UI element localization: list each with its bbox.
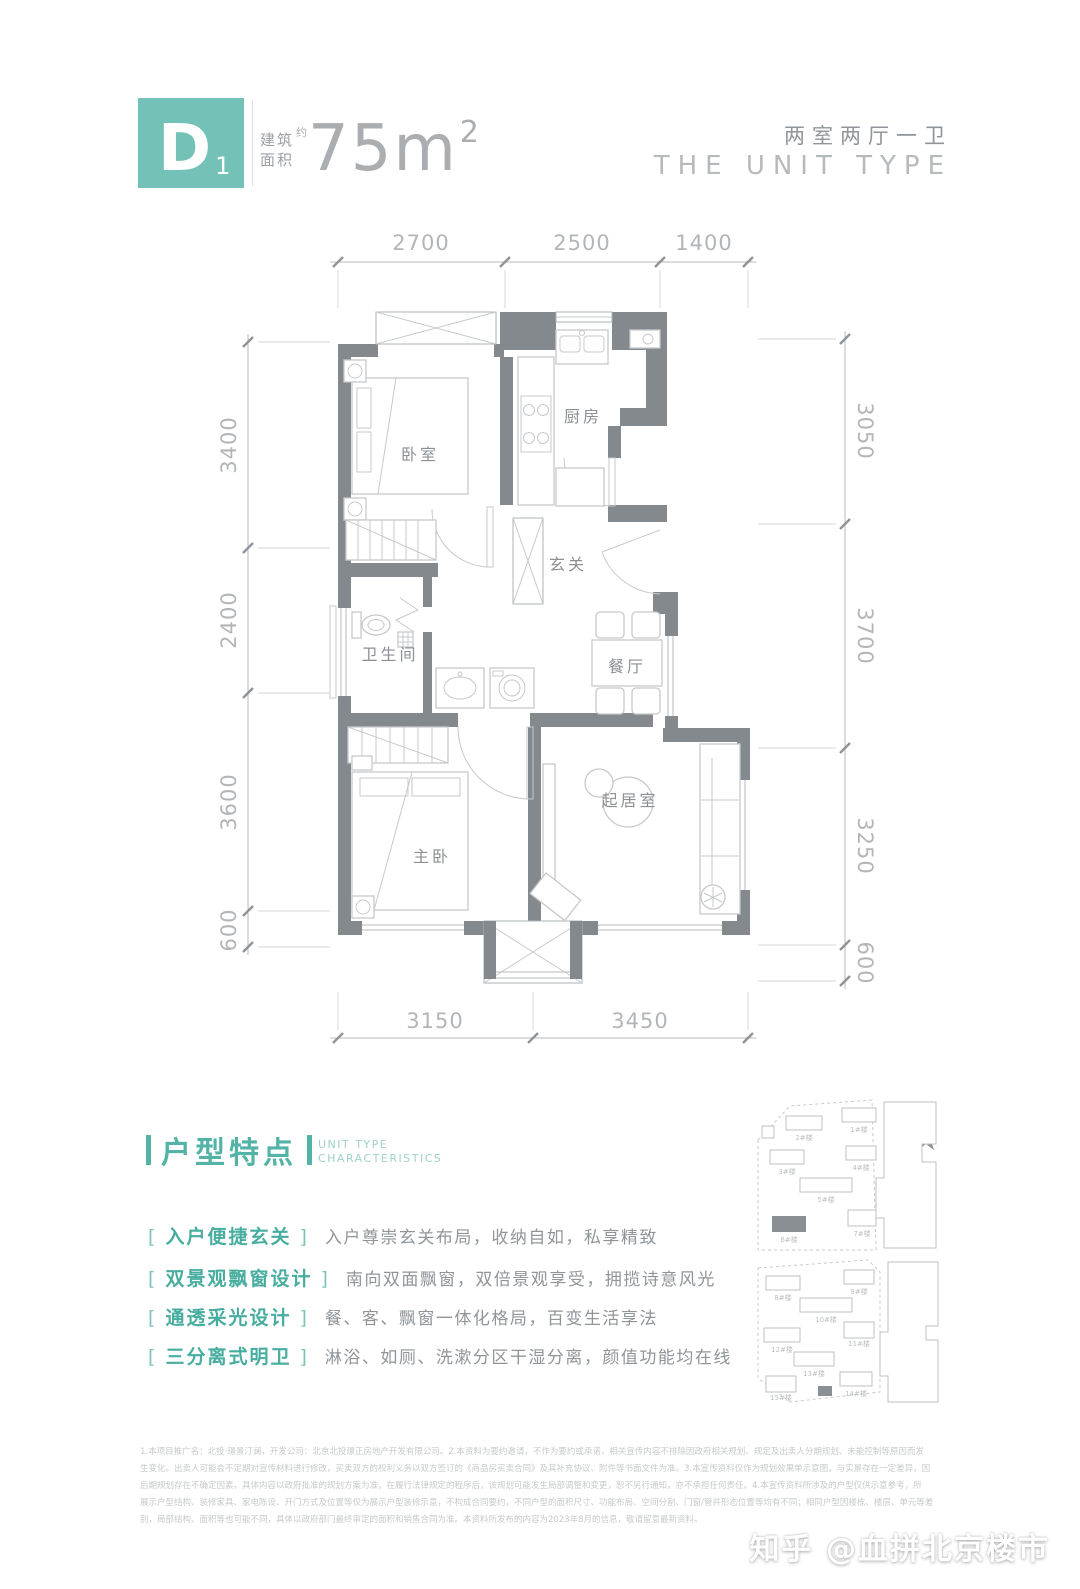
room-label-master: 主卧 (413, 847, 451, 866)
room-label-dining: 餐厅 (608, 657, 646, 676)
feature-tag: 三分离式明卫 (148, 1342, 309, 1369)
site-bldg-6: 6#楼 (780, 1235, 797, 1244)
dim-right-3: 3250 (853, 817, 877, 874)
feature-item-4: 三分离式明卫 淋浴、如厕、洗漱分区干湿分离，颜值功能均在线 (148, 1342, 732, 1369)
site-bldg-14: 14#楼 (845, 1389, 867, 1398)
site-bldg-9: 9#楼 (850, 1287, 867, 1296)
dim-left-2: 2400 (217, 591, 241, 648)
site-bldg-12: 12#楼 (771, 1345, 793, 1354)
floorplan-page: D 1 建筑 面积 约 75m2 两室两厅一卫 THE UNIT TYPE (0, 0, 1080, 1589)
room-label-foyer: 玄关 (549, 555, 587, 574)
dimension-bottom: 3150 3450 (330, 992, 756, 1043)
dim-top-3: 1400 (675, 231, 732, 255)
site-bldg-3: 3#楼 (778, 1167, 795, 1176)
dim-left-4: 600 (217, 908, 241, 951)
disclaimer-text: 1.本项目推广名：北投·璟景汀澜，开发公司：北京北投璟正房地产开发有限公司。2.… (140, 1444, 956, 1529)
dim-left-3: 3600 (217, 773, 241, 830)
site-bldg-8: 8#楼 (774, 1293, 791, 1302)
site-bldg-13: 13#楼 (803, 1369, 825, 1378)
site-bldg-11: 11#楼 (848, 1339, 870, 1348)
feature-item-3: 通透采光设计 餐、客、飘窗一体化格局，百变生活享法 (148, 1303, 658, 1330)
dim-bottom-2: 3450 (611, 1009, 668, 1033)
dim-top-1: 2700 (392, 231, 449, 255)
site-bldg-1: 1#楼 (850, 1125, 867, 1134)
feature-desc: 餐、客、飘窗一体化格局，百变生活享法 (325, 1304, 658, 1329)
dim-right-4: 600 (853, 941, 877, 984)
site-plan: N 1#楼 2#楼 3#楼 4#楼 5#楼 6#楼 7#楼 (758, 1100, 938, 1402)
disclaimer-line: 生变化。出卖人可能会不定期对宣传材料进行修改，买卖双方的权利义务以双方签订的《商… (140, 1461, 956, 1478)
room-label-bath: 卫生间 (361, 645, 418, 664)
disclaimer-line: 1.本项目推广名：北投·璟景汀澜，开发公司：北京北投璟正房地产开发有限公司。2.… (140, 1444, 956, 1461)
feature-desc: 淋浴、如厕、洗漱分区干湿分离，颜值功能均在线 (325, 1343, 732, 1368)
dim-right-2: 3700 (853, 607, 877, 664)
room-label-kitchen: 厨房 (564, 407, 602, 426)
dimension-left: 3400 2400 3600 600 (217, 334, 330, 955)
watermark: 知乎 @血拼北京楼市 (750, 1524, 1050, 1568)
room-label-bedroom: 卧室 (401, 445, 439, 464)
dimension-right: 3050 3700 3250 600 (758, 331, 877, 989)
dimension-top: 2700 2500 1400 (330, 231, 756, 308)
title-bar-right (307, 1135, 312, 1165)
features-header: 户型特点 (146, 1128, 312, 1172)
dim-right-1: 3050 (853, 402, 877, 459)
duct-shaft (513, 518, 543, 604)
dim-top-2: 2500 (553, 231, 610, 255)
disclaimer-line: 后期规划存在不确定因素，具体内容以政府批准的规划方案为准，在履行法律规定的程序后… (140, 1478, 956, 1495)
dim-bottom-1: 3150 (406, 1009, 463, 1033)
room-label-living: 起居室 (601, 791, 658, 810)
disclaimer-line: 展示户型结构、装修家具、家电陈设、开门方式及位置等仅为展示户型装修示意，不构成合… (140, 1495, 956, 1512)
site-bldg-5: 5#楼 (817, 1195, 834, 1204)
feature-tag: 入户便捷玄关 (148, 1222, 309, 1249)
feature-desc: 南向双面飘窗，双倍景观享受，拥揽诗意风光 (346, 1265, 716, 1290)
site-bldg-15: 15#楼 (770, 1393, 792, 1402)
feature-item-2: 双景观飘窗设计 南向双面飘窗，双倍景观享受，拥揽诗意风光 (148, 1264, 716, 1291)
site-bldg-2: 2#楼 (795, 1133, 812, 1142)
feature-tag: 双景观飘窗设计 (148, 1264, 330, 1291)
feature-tag: 通透采光设计 (148, 1303, 309, 1330)
site-bldg-10: 10#楼 (815, 1315, 837, 1324)
dim-left-1: 3400 (217, 416, 241, 473)
site-bldg-4: 4#楼 (852, 1163, 869, 1172)
features-title: 户型特点 (161, 1128, 297, 1172)
site-bldg-7: 7#楼 (853, 1229, 870, 1238)
feature-item-1: 入户便捷玄关 入户尊崇玄关布局，收纳自如，私享精致 (148, 1222, 658, 1249)
title-bar-left (146, 1135, 151, 1165)
features-subtitle: UNIT TYPE CHARACTERISTICS (318, 1138, 442, 1166)
feature-desc: 入户尊崇玄关布局，收纳自如，私享精致 (325, 1223, 658, 1248)
